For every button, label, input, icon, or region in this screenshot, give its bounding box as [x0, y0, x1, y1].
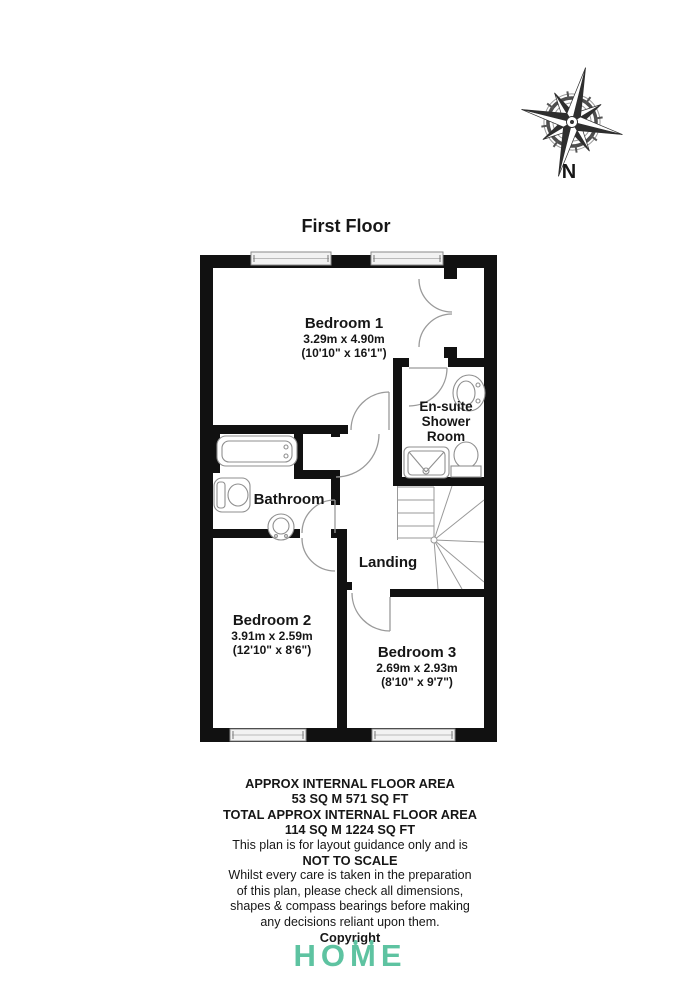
window — [371, 252, 443, 265]
total-area-value: 114 SQ M 1224 SQ FT — [140, 822, 560, 837]
wall-segment — [444, 347, 457, 358]
wall-segment — [294, 470, 340, 479]
room-name: Bedroom 3 — [376, 644, 457, 661]
room-name: Shower — [419, 414, 472, 429]
room-dim-imperial: (8'10" x 9'7") — [376, 675, 457, 689]
room-dim-imperial: (12'10" x 8'6") — [231, 643, 312, 657]
wall-segment — [337, 582, 352, 590]
disclaimer-text: Whilst every care is taken in the prepar… — [140, 868, 560, 883]
shower — [404, 447, 449, 478]
page-title: First Floor — [302, 216, 391, 237]
room-label-ensuite: En-suite Shower Room — [419, 399, 472, 444]
floor-area-line: APPROX INTERNAL FLOOR AREA — [140, 776, 560, 791]
disclaimer-text: shapes & compass bearings before making — [140, 899, 560, 914]
not-to-scale-text: NOT TO SCALE — [140, 853, 560, 868]
room-label-bedroom3: Bedroom 3 2.69m x 2.93m (8'10" x 9'7") — [376, 644, 457, 689]
room-name: Bedroom 1 — [301, 315, 386, 332]
logo-text: E — [381, 939, 407, 973]
room-label-bedroom2: Bedroom 2 3.91m x 2.59m (12'10" x 8'6") — [231, 612, 312, 657]
compass-north-label: N — [562, 161, 576, 184]
window — [251, 252, 331, 265]
wall-segment — [331, 425, 340, 437]
room-dim-metric: 3.29m x 4.90m — [301, 332, 386, 346]
total-area-line: TOTAL APPROX INTERNAL FLOOR AREA — [140, 807, 560, 822]
room-label-bedroom1: Bedroom 1 3.29m x 4.90m (10'10" x 16'1") — [301, 315, 386, 360]
door-arc — [336, 434, 379, 477]
wall-segment — [444, 268, 457, 279]
door-arc — [351, 392, 389, 430]
wall-segment — [200, 425, 348, 434]
wall-segment — [200, 255, 213, 742]
toilet — [451, 442, 481, 477]
sink — [268, 514, 294, 540]
wall-segment — [390, 589, 484, 597]
door-arc — [302, 538, 335, 571]
stair-winder-post — [431, 537, 437, 543]
home-logo: HOME — [293, 939, 406, 973]
room-dim-metric: 2.69m x 2.93m — [376, 661, 457, 675]
wall-segment — [200, 255, 497, 268]
disclaimer-block: APPROX INTERNAL FLOOR AREA 53 SQ M 571 S… — [140, 776, 560, 945]
floor-area-value: 53 SQ M 571 SQ FT — [140, 791, 560, 806]
room-dim-imperial: (10'10" x 16'1") — [301, 346, 386, 360]
disclaimer-text: of this plan, please check all dimension… — [140, 884, 560, 899]
wall-segment — [393, 358, 402, 486]
bathroom-fixtures — [214, 436, 297, 540]
room-label-bathroom: Bathroom — [254, 491, 325, 508]
door-arc — [419, 279, 452, 312]
room-label-landing: Landing — [359, 554, 417, 571]
door-arc — [419, 314, 452, 347]
room-name: Bedroom 2 — [231, 612, 312, 629]
bathtub — [217, 436, 297, 466]
logo-text-m-with-dots: M — [350, 939, 381, 973]
disclaimer-text: any decisions reliant upon them. — [140, 915, 560, 930]
door-arc — [352, 593, 390, 631]
room-dim-metric: 3.91m x 2.59m — [231, 629, 312, 643]
disclaimer-text: This plan is for layout guidance only an… — [140, 838, 560, 853]
toilet — [214, 478, 250, 512]
window — [230, 729, 306, 741]
wall-segment — [337, 529, 347, 728]
stairs — [398, 486, 485, 589]
window — [372, 729, 455, 741]
room-name: En-suite — [419, 399, 472, 414]
logo-text: HO — [293, 939, 350, 973]
room-name: Room — [419, 429, 472, 444]
wall-segment — [448, 358, 484, 367]
wall-segment — [484, 255, 497, 742]
floorplan-page: N First Floor Bedroom 1 3.29m x 4.90m (1… — [0, 0, 700, 990]
wall-segment — [393, 358, 409, 367]
